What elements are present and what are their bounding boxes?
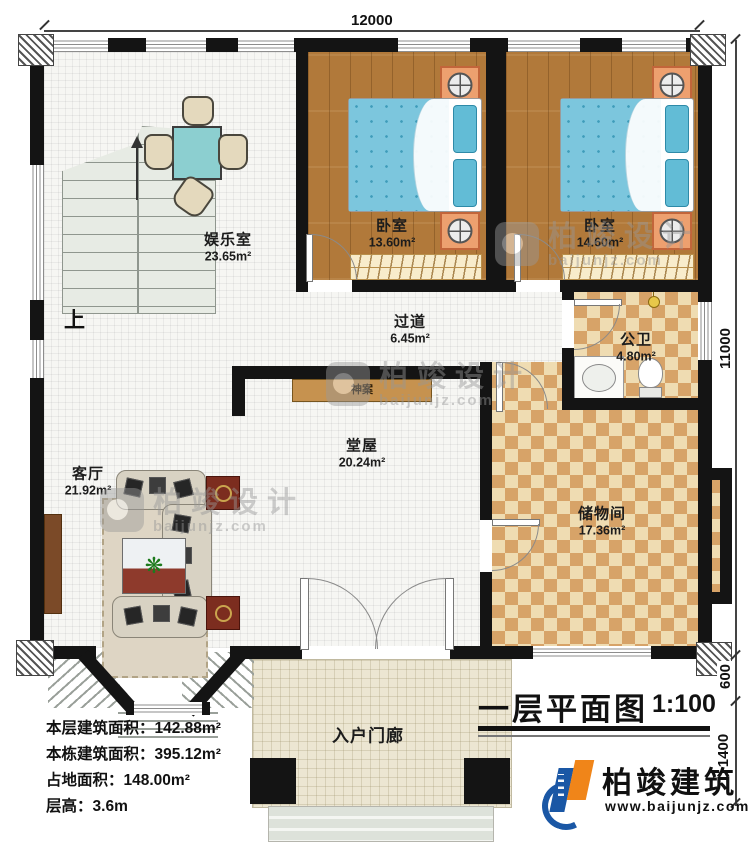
bed-sheet [625,99,662,211]
game-table [172,126,222,180]
dim-top-value: 12000 [348,12,396,29]
company-name: 柏竣建筑 [602,758,738,802]
wall [30,38,712,52]
wall [245,646,302,659]
drawing-scale: 1:100 [652,690,716,719]
corner-pier [16,640,54,676]
pillow [665,105,689,153]
toilet-tank [639,387,662,398]
toilet-icon [636,358,664,398]
door-opening [308,280,352,292]
window [30,165,44,300]
watermark-logo-icon [326,362,370,406]
pillow [453,159,477,207]
watermark: 柏竣设计 baijunjz.com [495,222,700,269]
stairs-up-label: 上 [64,304,85,334]
window [508,38,580,52]
dim-line-right [735,40,737,806]
room-label-hall: 堂屋 20.24m² [339,435,386,470]
chair-left [144,134,174,170]
sink-icon [582,364,616,392]
entry-door-leaf [445,578,454,650]
bay-window [134,702,202,715]
lamp-icon [448,219,473,244]
title-underline-thin [478,735,710,737]
logo-windows [558,774,564,796]
wall [232,366,245,416]
dim-tick [694,20,705,31]
room-label-storage: 储物间 17.36m² [578,503,626,538]
company-website: www.baijunjz.com [605,798,750,814]
pillow [453,105,477,153]
wall [720,468,732,604]
lamp-icon [660,73,685,98]
company-logo: 柏竣建筑 www.baijunjz.com [544,752,746,828]
chair-top [182,96,214,126]
end-table-ornament [215,605,232,622]
logo-mark-icon [544,756,596,820]
watermark: 柏竣设计 baijunjz.com [100,488,305,535]
window [146,38,206,52]
corner-pier [18,34,54,66]
window [533,646,651,659]
bedroom1-nightstand-bottom [440,212,480,250]
wall [562,292,574,300]
watermark-logo-icon [100,488,144,532]
ceiling-light-icon [648,296,660,308]
wall [480,572,492,648]
info-line: 本层建筑面积：142.88m² [46,716,221,742]
sofa-bottom [112,596,208,638]
bedroom1-bed [348,98,482,212]
window [622,38,686,52]
window [398,38,470,52]
bay-window-cap [202,702,210,715]
mattress [561,99,661,211]
door-opening [562,300,574,348]
window [238,38,294,52]
title-underline [478,726,710,731]
dim-tick [39,20,50,31]
porch-pillar [464,758,510,804]
watermark: 柏竣设计 baijunjz.com [326,362,531,409]
window [30,340,44,378]
wall [296,280,698,292]
bed-sheet [413,99,450,211]
door-opening [480,520,492,572]
plant-icon: ❋ [145,553,163,578]
info-line: 层高：3.6m [46,794,221,820]
room-label-bedroom1: 卧室 13.60m² [369,215,416,250]
room-label-entertainment: 娱乐室 23.65m² [204,229,252,264]
room-label-hallway: 过道 6.45m² [390,311,430,346]
dim-line-top [44,30,700,32]
stair-arrow-head [131,136,143,148]
info-line: 占地面积：148.00m² [46,768,221,794]
info-line: 本栋建筑面积：395.12m² [46,742,221,768]
porch-pillar [250,758,296,804]
coffee-table: ❋ [122,538,186,594]
room-label-bathroom: 公卫 4.80m² [616,329,656,364]
stair-arrow-line [136,146,138,200]
room-label-porch: 入户门廊 [332,722,404,747]
porch-steps [268,806,494,842]
bedroom1-wardrobe [350,254,482,280]
area-info-block: 本层建筑面积：142.88m² 本栋建筑面积：395.12m² 占地面积：148… [46,716,221,820]
bay-window-cap [126,702,134,715]
dim-right-value: 11000 [717,325,734,372]
corner-pier [690,34,726,66]
logo-tower-orange [567,760,595,800]
lamp-icon [448,73,473,98]
dim-600-value: 600 [717,661,734,692]
wall [450,646,506,659]
window [698,302,712,360]
chair-right [218,134,248,170]
end-table-bottom [206,596,240,630]
mattress [349,99,449,211]
watermark-logo-icon [495,222,539,266]
pillow [665,159,689,207]
door-opening [516,280,560,292]
drawing-title: 一层平面图 [478,684,648,729]
floor-plan: ❋ 神案 [0,0,750,842]
tv-cabinet [44,514,62,614]
bedroom2-bed [560,98,694,212]
wall [562,398,698,410]
window [52,38,108,52]
